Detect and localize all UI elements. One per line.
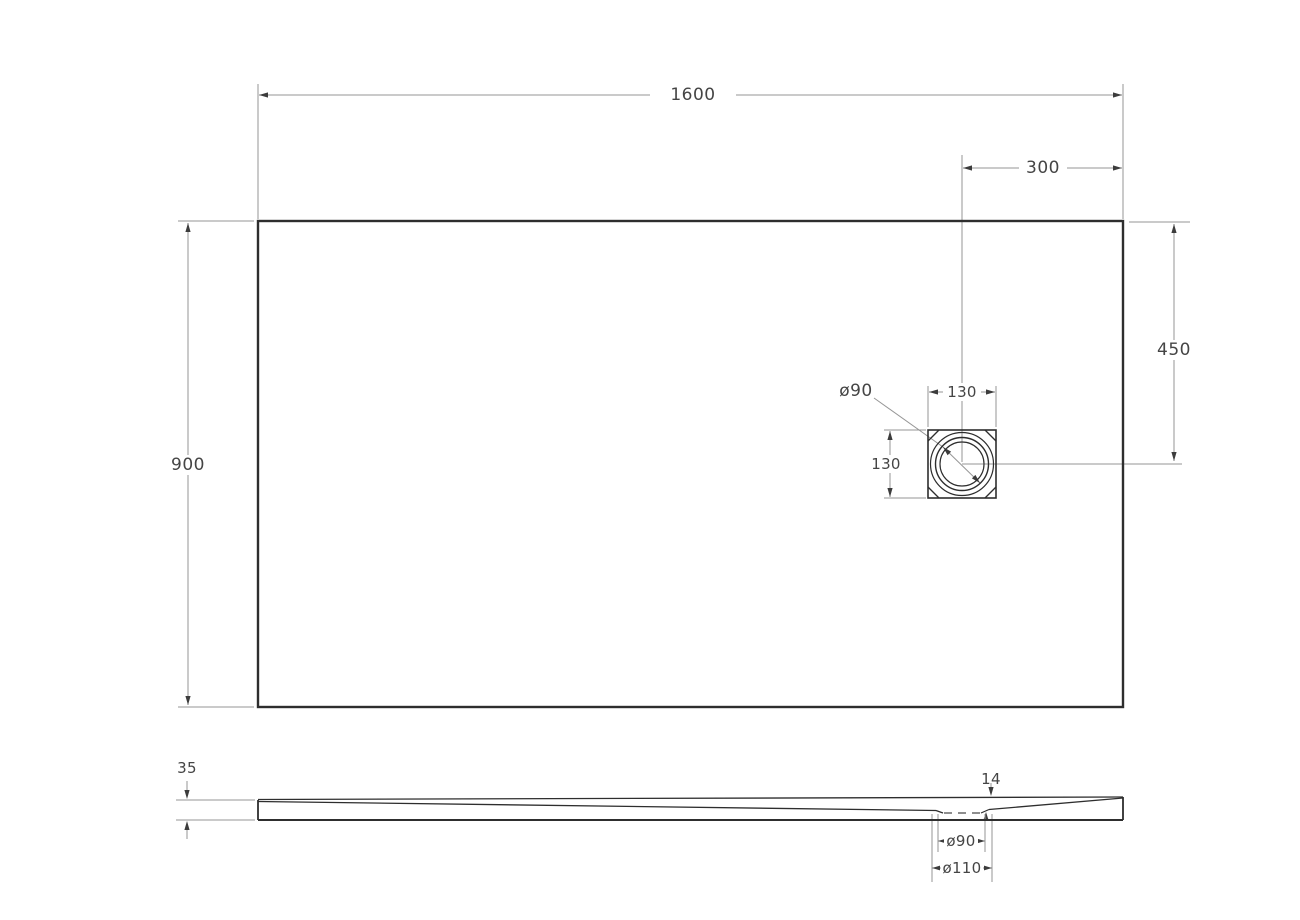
section-profile xyxy=(258,797,1123,820)
dim-label-130-height: 130 xyxy=(871,455,901,473)
drain-chamfer-bottomright xyxy=(985,487,996,498)
leader-line-diameter xyxy=(874,398,943,447)
profile-recess-chamfer-right xyxy=(981,810,989,814)
drain-chamfer-bottomleft xyxy=(928,487,939,498)
arrowhead-up-icon xyxy=(984,812,989,820)
arrowhead-down-icon xyxy=(887,488,892,497)
profile-rim-line xyxy=(258,797,1123,800)
dim-label-hole-diameter: ø90 xyxy=(946,832,975,850)
arrowhead-right-icon xyxy=(986,389,995,394)
arrowhead-up-icon xyxy=(887,431,892,440)
dim-label-900: 900 xyxy=(171,455,205,475)
drain-chamfer-topleft xyxy=(928,430,939,441)
technical-drawing-page: 1600 300 900 450 130 130 ø90 35 14 ø90 ø… xyxy=(0,0,1300,920)
arrowhead-right-icon xyxy=(984,866,992,871)
arrowhead-up-icon xyxy=(184,821,189,830)
profile-recess-chamfer-left xyxy=(936,811,943,814)
arrowhead-right-icon xyxy=(977,839,985,844)
profile-slope-left xyxy=(258,802,936,811)
arrowhead-right-icon xyxy=(1113,165,1122,170)
profile-slope-right xyxy=(989,798,1123,810)
dim-label-flange-diameter: ø110 xyxy=(942,859,981,877)
arrowhead-down-icon xyxy=(988,787,993,796)
drawing-svg: 1600 300 900 450 130 130 ø90 35 14 ø90 ø… xyxy=(0,0,1300,920)
arrowhead-left-icon xyxy=(932,866,940,871)
dim-label-130-width: 130 xyxy=(947,383,977,401)
dim-label-450: 450 xyxy=(1157,340,1191,360)
arrowhead-right-icon xyxy=(1113,92,1122,97)
arrowhead-down-icon xyxy=(184,790,189,799)
dim-label-1600: 1600 xyxy=(670,85,715,105)
dim-label-35: 35 xyxy=(177,759,197,777)
section-dimension-lines xyxy=(176,781,994,882)
dim-label-300: 300 xyxy=(1026,158,1060,178)
arrowhead-left-icon xyxy=(963,165,972,170)
arrowhead-left-icon xyxy=(259,92,268,97)
arrowhead-down-icon xyxy=(1171,452,1176,461)
arrowhead-down-icon xyxy=(185,696,190,705)
drain-chamfer-topright xyxy=(985,430,996,441)
arrowhead-up-icon xyxy=(1171,224,1176,233)
arrowhead-left-icon xyxy=(929,389,938,394)
dim-label-14: 14 xyxy=(981,770,1001,788)
dim-label-drain-diameter: ø90 xyxy=(839,381,873,401)
dimension-labels: 1600 300 900 450 130 130 ø90 35 14 ø90 ø… xyxy=(166,85,1196,877)
arrowhead-up-icon xyxy=(185,223,190,232)
